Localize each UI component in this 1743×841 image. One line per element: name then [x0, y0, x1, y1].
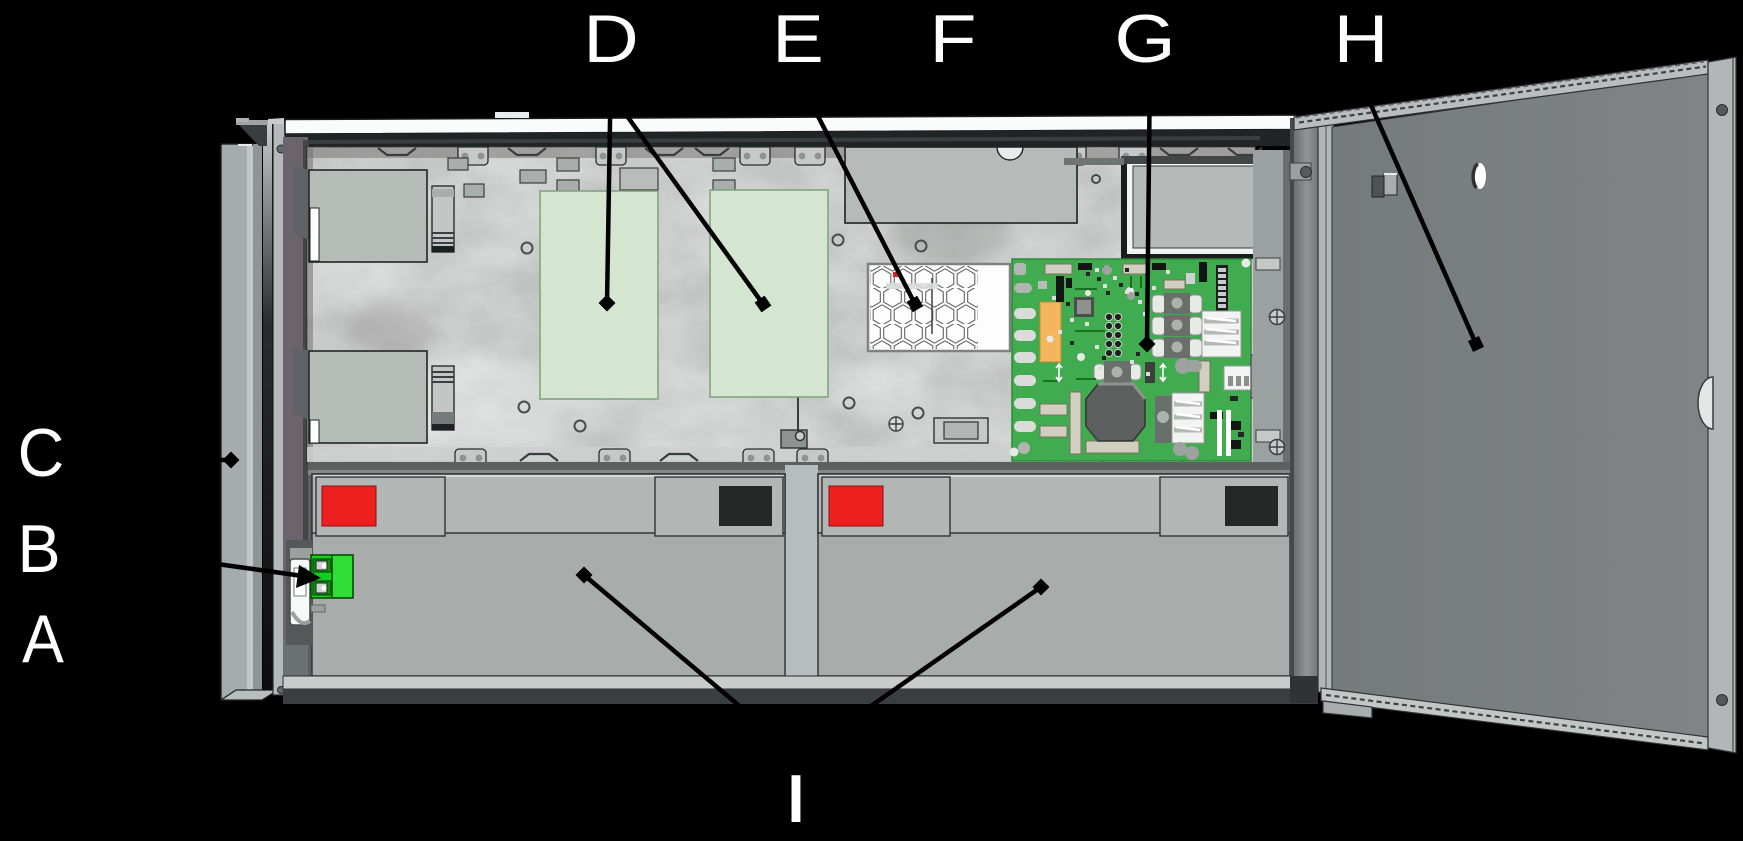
- svg-text:I: I: [783, 760, 809, 836]
- svg-text:B: B: [17, 512, 60, 588]
- svg-text:F: F: [930, 1, 977, 77]
- svg-text:E: E: [772, 1, 824, 77]
- svg-text:C: C: [18, 416, 65, 492]
- svg-text:G: G: [1114, 0, 1175, 77]
- svg-text:A: A: [22, 601, 64, 677]
- svg-text:D: D: [583, 1, 639, 77]
- svg-text:H: H: [1334, 1, 1389, 77]
